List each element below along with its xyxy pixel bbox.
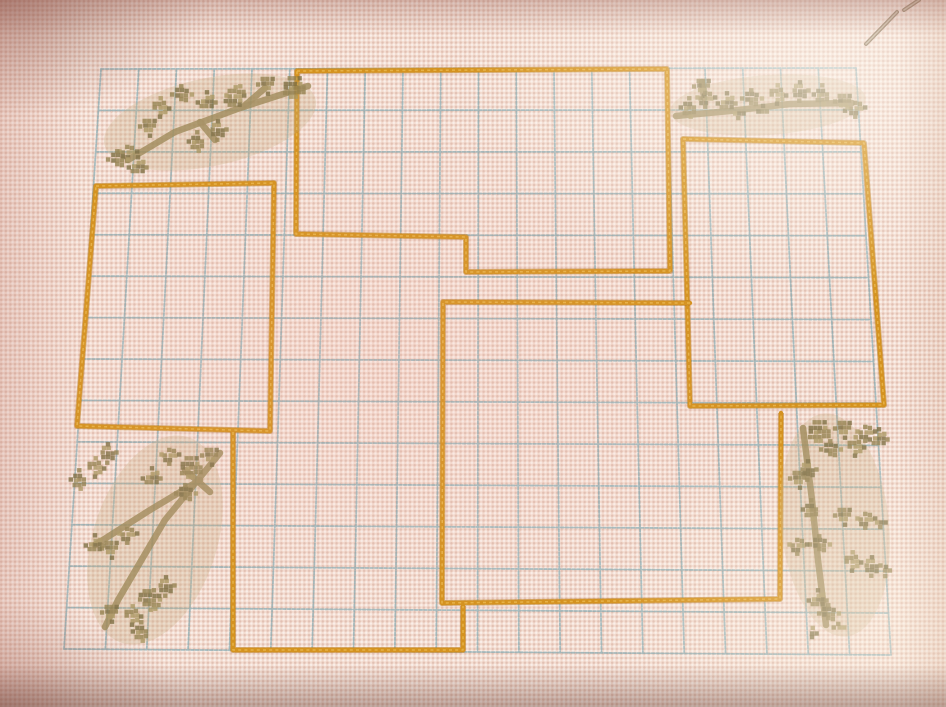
branch-motif-top-right	[668, 68, 868, 142]
frame-center	[442, 302, 781, 603]
frame-top-right	[683, 139, 884, 406]
branch-motif-bottom-right	[770, 408, 901, 642]
branch-motif-bottom-left	[63, 418, 248, 662]
stitch-pattern-svg	[0, 0, 946, 707]
frame-top-left	[77, 183, 274, 431]
needle	[866, 0, 919, 44]
frame-bottom-left	[233, 432, 463, 650]
cross-stitch-photo	[0, 0, 946, 707]
frame-top-banner	[296, 69, 670, 272]
